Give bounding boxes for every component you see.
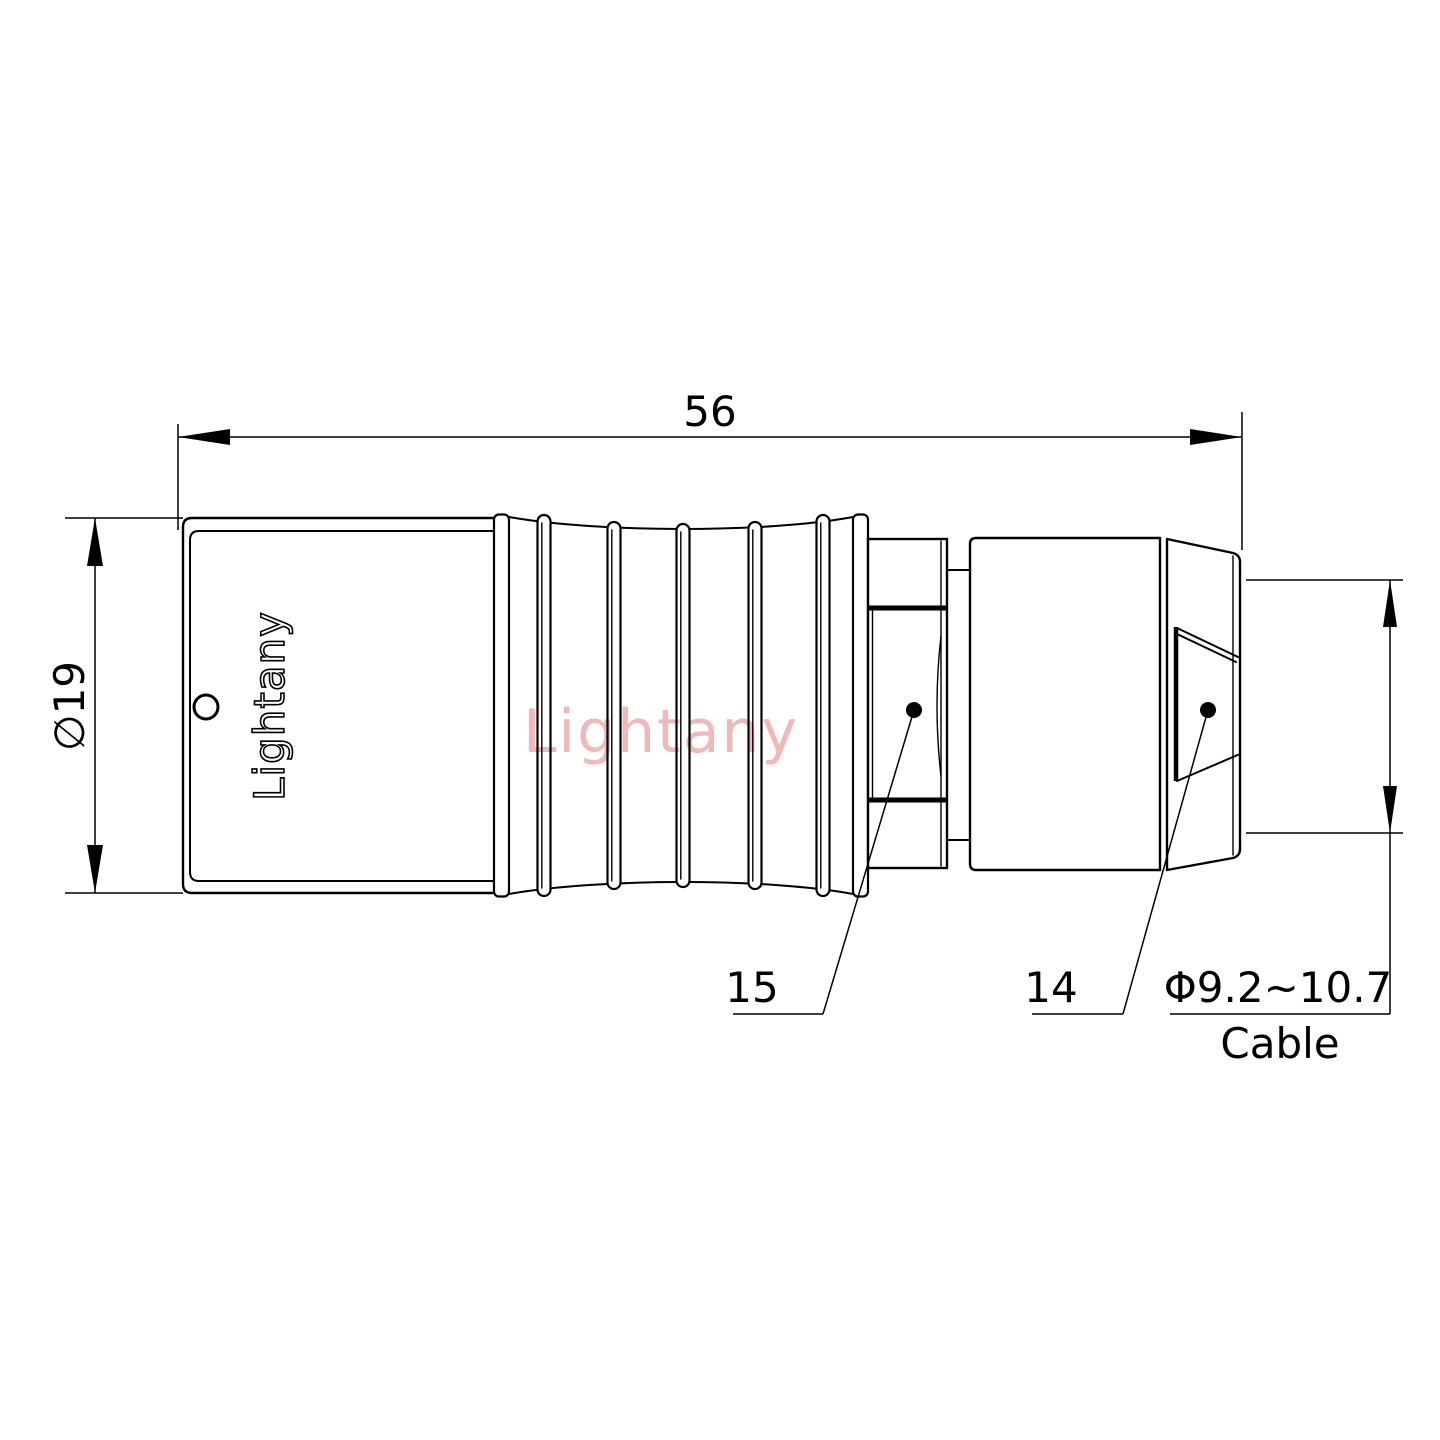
- clamp-block: [868, 539, 947, 868]
- cable-diameter-value: Φ9.2~10.7: [1164, 963, 1393, 1012]
- grip-collar-right: [853, 515, 868, 897]
- leader-dot-15: [906, 702, 922, 718]
- rear-nut: [970, 538, 1240, 870]
- brand-engraving: Lightany: [245, 611, 294, 801]
- grip-collar-left: [494, 515, 509, 897]
- body-diameter-value: ∅19: [45, 661, 94, 751]
- part-number-14: 14: [1024, 963, 1077, 1012]
- cable-label: Cable: [1220, 1019, 1339, 1068]
- part-number-15: 15: [725, 963, 778, 1012]
- overall-length-value: 56: [683, 387, 736, 436]
- leader-dot-14: [1200, 702, 1216, 718]
- technical-drawing: Lightany: [0, 0, 1440, 1440]
- drawing-canvas: Lightany: [0, 0, 1440, 1440]
- watermark: Lightany: [523, 697, 799, 767]
